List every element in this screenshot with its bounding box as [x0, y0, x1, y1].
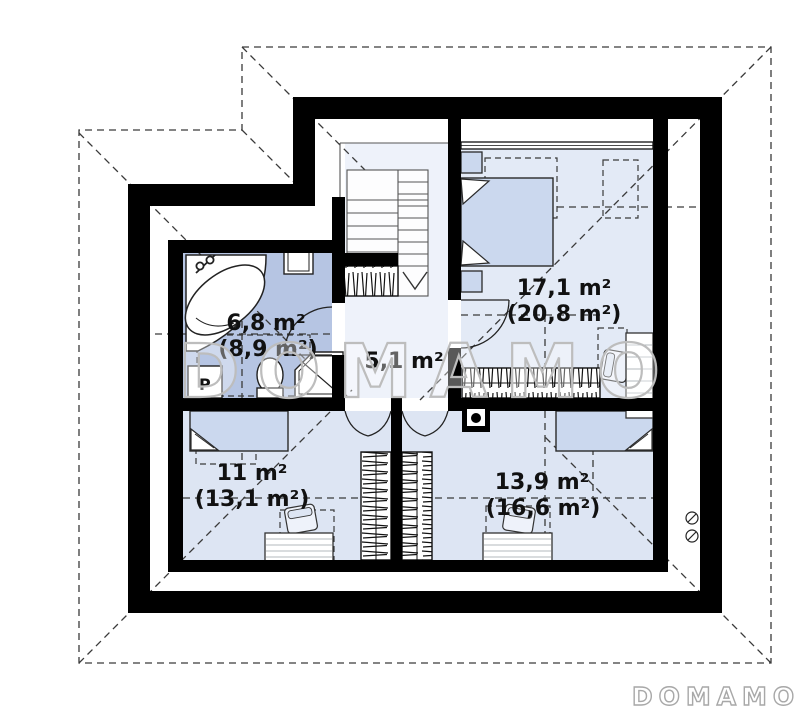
- bedroom-top-right-total-area-label: (20,8 m²): [507, 302, 622, 327]
- wardrobe-icon: [361, 452, 391, 560]
- dormer-window: [461, 119, 653, 149]
- wall: [168, 560, 668, 572]
- bedroom-top-right-area-label: 17,1 m²: [517, 276, 612, 301]
- bedroom-bottom-left-area-label: 11 m²: [217, 461, 288, 486]
- single-bed-icon: [190, 411, 288, 451]
- bedroom-bottom-left-total-area-label: (13,1 m²): [195, 487, 310, 512]
- wall: [332, 197, 345, 303]
- wardrobe-icon: [402, 452, 432, 560]
- bedroom-bottom-right-area-label: 13,9 m²: [495, 470, 590, 495]
- floor-plan-svg: P: [0, 0, 800, 711]
- nightstand-icon: [461, 271, 482, 292]
- nightstand-icon: [461, 152, 482, 173]
- brand-logo: DOMAMO: [632, 682, 800, 711]
- stair-balustrade: [343, 266, 398, 296]
- watermark: DOMAMO: [178, 329, 678, 415]
- wall: [391, 411, 402, 572]
- wall: [340, 253, 398, 266]
- wall: [448, 119, 461, 300]
- bedroom-bottom-right-total-area-label: (16,6 m²): [486, 496, 601, 521]
- wall: [168, 240, 345, 253]
- floor-plan-page: P: [0, 0, 800, 711]
